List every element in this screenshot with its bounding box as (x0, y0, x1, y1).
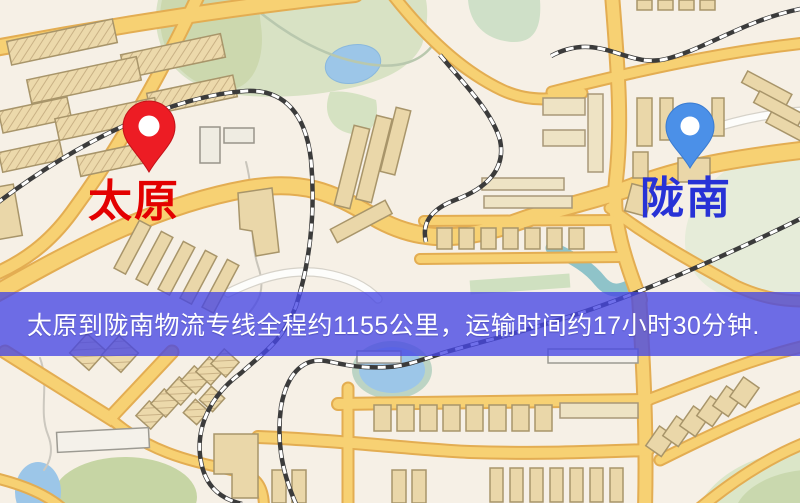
map-canvas (0, 0, 800, 503)
route-info-text: 太原到陇南物流专线全程约1155公里，运输时间约17小时30分钟. (27, 306, 760, 342)
map-screenshot: 太原 陇南 太原到陇南物流专线全程约1155公里，运输时间约17小时30分钟. (0, 0, 800, 503)
route-info-banner: 太原到陇南物流专线全程约1155公里，运输时间约17小时30分钟. (0, 292, 800, 356)
origin-city-label: 太原 (88, 180, 180, 224)
destination-city-label: 陇南 (640, 177, 732, 221)
